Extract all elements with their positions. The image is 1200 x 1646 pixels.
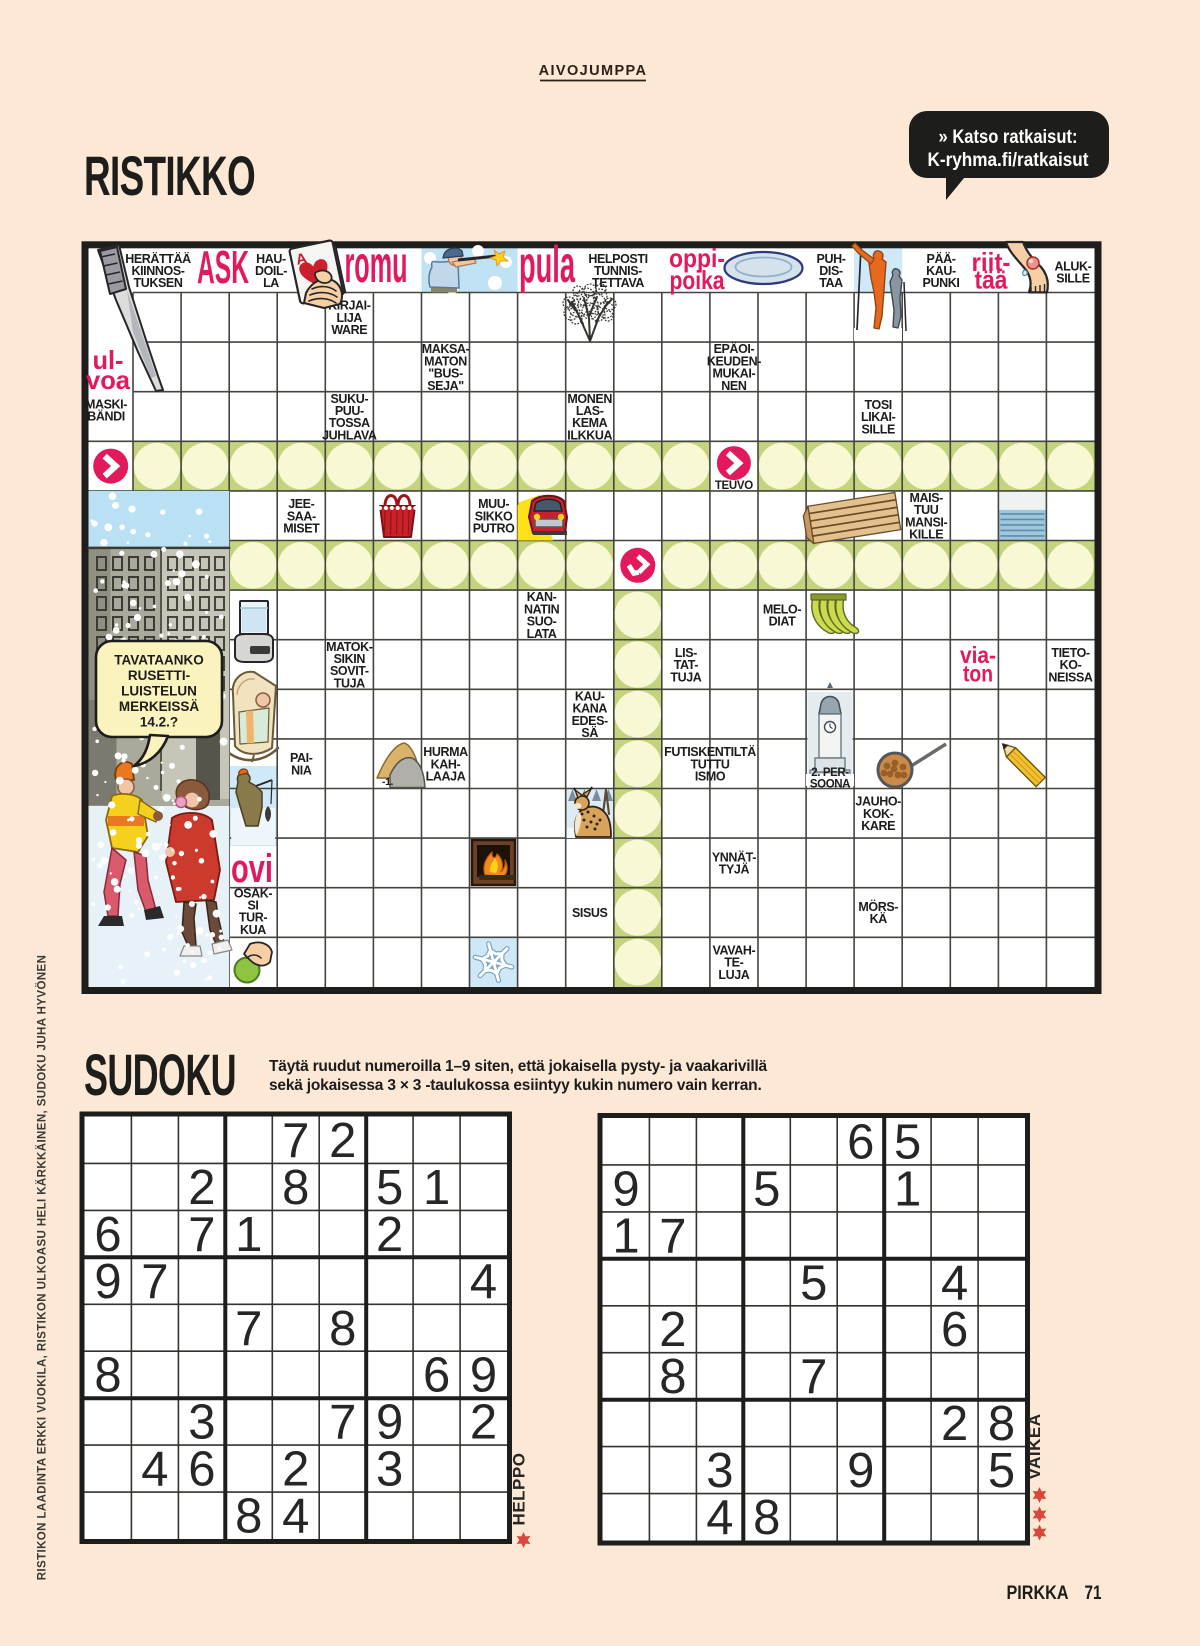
svg-text:4: 4 bbox=[706, 1491, 733, 1545]
svg-text:KARE: KARE bbox=[861, 819, 895, 833]
svg-text:TYJÄ: TYJÄ bbox=[719, 862, 750, 877]
svg-text:DIAT: DIAT bbox=[769, 615, 796, 629]
svg-text:2: 2 bbox=[941, 1397, 968, 1451]
svg-text:8: 8 bbox=[988, 1397, 1015, 1451]
svg-text:MISET: MISET bbox=[283, 522, 320, 536]
svg-text:7: 7 bbox=[659, 1209, 686, 1263]
svg-text:TUJA: TUJA bbox=[670, 670, 701, 684]
svg-text:NEN: NEN bbox=[721, 379, 747, 393]
svg-text:6: 6 bbox=[941, 1303, 968, 1357]
svg-text:JUHLAVA: JUHLAVA bbox=[322, 428, 377, 442]
svg-text:SILLE: SILLE bbox=[1056, 272, 1089, 286]
svg-text:NIA: NIA bbox=[291, 763, 312, 777]
svg-text:Täytä ruudut numeroilla 1–9 si: Täytä ruudut numeroilla 1–9 siten, että … bbox=[269, 1058, 768, 1075]
svg-text:LAAJA: LAAJA bbox=[426, 770, 466, 784]
svg-text:3: 3 bbox=[188, 1396, 215, 1450]
svg-text:poika: poika bbox=[670, 265, 725, 295]
svg-text:7: 7 bbox=[235, 1302, 262, 1356]
svg-text:sekä jokaisessa 3 × 3 -tauluko: sekä jokaisessa 3 × 3 -taulukossa esiint… bbox=[269, 1077, 762, 1094]
svg-text:RISTIKKO: RISTIKKO bbox=[84, 144, 255, 207]
svg-text:71: 71 bbox=[1085, 1583, 1102, 1604]
svg-text:2: 2 bbox=[329, 1114, 356, 1168]
svg-text:K-ryhma.fi/ratkaisut: K-ryhma.fi/ratkaisut bbox=[928, 150, 1090, 171]
svg-text:7: 7 bbox=[188, 1208, 215, 1262]
svg-text:14.2.?: 14.2.? bbox=[140, 715, 178, 730]
svg-text:2. PER-: 2. PER- bbox=[811, 767, 849, 779]
svg-text:LA: LA bbox=[263, 276, 279, 290]
svg-text:9: 9 bbox=[847, 1444, 874, 1498]
svg-text:TETTAVA: TETTAVA bbox=[592, 276, 644, 290]
svg-text:BÄNDI: BÄNDI bbox=[87, 409, 125, 424]
svg-text:9: 9 bbox=[376, 1396, 403, 1450]
svg-text:5: 5 bbox=[894, 1116, 921, 1170]
svg-text:tää: tää bbox=[975, 265, 1008, 295]
svg-text:7: 7 bbox=[282, 1114, 309, 1168]
svg-text:6: 6 bbox=[188, 1443, 215, 1497]
svg-text:PIRKKA: PIRKKA bbox=[1007, 1583, 1069, 1604]
svg-text:6: 6 bbox=[847, 1116, 874, 1170]
svg-text:6: 6 bbox=[94, 1208, 121, 1262]
svg-text:voa: voa bbox=[86, 365, 131, 395]
svg-text:PUNKI: PUNKI bbox=[923, 276, 960, 290]
svg-text:-1.: -1. bbox=[382, 776, 394, 788]
svg-text:9: 9 bbox=[94, 1255, 121, 1309]
svg-text:SEJA": SEJA" bbox=[427, 379, 464, 393]
svg-text:6: 6 bbox=[423, 1349, 450, 1403]
svg-text:PUTRO: PUTRO bbox=[473, 522, 515, 536]
svg-text:2: 2 bbox=[659, 1303, 686, 1357]
svg-text:3: 3 bbox=[706, 1444, 733, 1498]
svg-text:5: 5 bbox=[988, 1444, 1015, 1498]
svg-text:5: 5 bbox=[800, 1256, 827, 1310]
svg-text:TEUVO: TEUVO bbox=[715, 480, 753, 492]
svg-text:4: 4 bbox=[941, 1256, 968, 1310]
svg-text:TUKSEN: TUKSEN bbox=[134, 276, 183, 290]
svg-text:2: 2 bbox=[282, 1443, 309, 1497]
svg-text:8: 8 bbox=[94, 1349, 121, 1403]
svg-text:9: 9 bbox=[470, 1349, 497, 1403]
svg-text:1: 1 bbox=[235, 1208, 262, 1262]
svg-text:4: 4 bbox=[282, 1490, 309, 1544]
svg-text:ton: ton bbox=[963, 661, 993, 687]
svg-text:ISMO: ISMO bbox=[695, 770, 726, 784]
svg-text:2: 2 bbox=[376, 1208, 403, 1262]
svg-text:MERKEISSÄ: MERKEISSÄ bbox=[119, 699, 200, 714]
svg-text:1: 1 bbox=[423, 1161, 450, 1215]
svg-text:5: 5 bbox=[753, 1162, 780, 1216]
svg-text:SILLE: SILLE bbox=[861, 422, 894, 436]
svg-text:LATA: LATA bbox=[527, 627, 557, 641]
svg-text:KUA: KUA bbox=[240, 923, 266, 937]
svg-text:8: 8 bbox=[282, 1161, 309, 1215]
svg-text:» Katso ratkaisut:: » Katso ratkaisut: bbox=[939, 127, 1078, 148]
svg-text:8: 8 bbox=[235, 1490, 262, 1544]
svg-text:SISUS: SISUS bbox=[572, 906, 608, 920]
svg-text:7: 7 bbox=[329, 1396, 356, 1450]
svg-text:LUJA: LUJA bbox=[718, 968, 749, 982]
svg-text:ASK: ASK bbox=[197, 241, 249, 293]
svg-text:AIVOJUMPPA: AIVOJUMPPA bbox=[539, 63, 648, 79]
svg-text:8: 8 bbox=[753, 1491, 780, 1545]
svg-text:NEISSA: NEISSA bbox=[1048, 670, 1093, 684]
svg-text:KILLE: KILLE bbox=[909, 528, 943, 542]
svg-text:TAVATAANKO: TAVATAANKO bbox=[114, 653, 203, 668]
svg-text:2: 2 bbox=[188, 1161, 215, 1215]
svg-text:RISTIKON LAADINTA ERKKI VUOKIL: RISTIKON LAADINTA ERKKI VUOKILA, RISTIKO… bbox=[36, 955, 49, 1581]
svg-text:romu: romu bbox=[345, 236, 408, 294]
svg-text:LUISTELUN: LUISTELUN bbox=[121, 684, 197, 699]
svg-text:8: 8 bbox=[329, 1302, 356, 1356]
svg-text:SOONA: SOONA bbox=[810, 778, 850, 790]
svg-text:1: 1 bbox=[612, 1209, 639, 1263]
svg-text:1: 1 bbox=[894, 1162, 921, 1216]
svg-text:7: 7 bbox=[141, 1255, 168, 1309]
svg-text:TUJA: TUJA bbox=[334, 676, 365, 690]
svg-text:HELPPO: HELPPO bbox=[510, 1453, 529, 1526]
svg-text:3: 3 bbox=[376, 1443, 403, 1497]
svg-text:9: 9 bbox=[612, 1162, 639, 1216]
svg-text:5: 5 bbox=[376, 1161, 403, 1215]
svg-text:SUDOKU: SUDOKU bbox=[84, 1043, 236, 1108]
svg-text:WARE: WARE bbox=[331, 323, 367, 337]
svg-text:SÄ: SÄ bbox=[581, 725, 598, 740]
svg-text:2: 2 bbox=[470, 1396, 497, 1450]
svg-text:8: 8 bbox=[659, 1350, 686, 1404]
svg-text:ovi: ovi bbox=[231, 847, 273, 891]
svg-text:4: 4 bbox=[470, 1255, 497, 1309]
svg-text:ILKKUA: ILKKUA bbox=[567, 428, 612, 442]
svg-text:4: 4 bbox=[141, 1443, 168, 1497]
svg-text:TAA: TAA bbox=[819, 276, 843, 290]
svg-text:RUSETTI-: RUSETTI- bbox=[128, 668, 190, 683]
svg-text:7: 7 bbox=[800, 1350, 827, 1404]
svg-text:pula: pula bbox=[519, 236, 576, 294]
svg-text:VAIKEA: VAIKEA bbox=[1025, 1414, 1044, 1480]
svg-text:KÄ: KÄ bbox=[870, 911, 888, 926]
